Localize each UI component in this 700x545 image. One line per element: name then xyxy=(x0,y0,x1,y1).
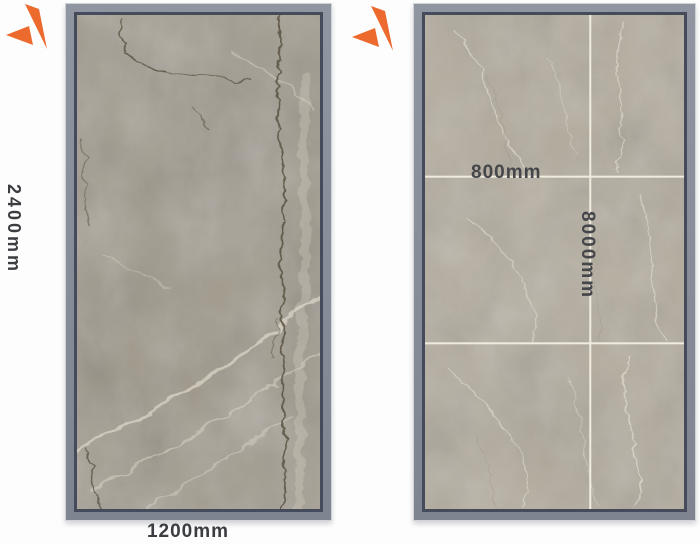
slab-panel xyxy=(65,3,332,521)
tile-product-image: 2400mm 1200mm xyxy=(0,0,700,545)
tile-panel: 800mm 8000mm xyxy=(413,3,696,521)
slab-panel-frame xyxy=(74,12,323,512)
tile-width-label: 800mm xyxy=(471,162,542,184)
slab-height-label: 2400mm xyxy=(3,184,24,274)
marble-tile-texture xyxy=(425,15,684,509)
slab-width-label: 1200mm xyxy=(118,521,258,543)
grout-line-horizontal-2 xyxy=(425,342,684,344)
spark-icon xyxy=(2,1,52,56)
tile-panel-frame: 800mm 8000mm xyxy=(422,12,687,512)
grout-line-horizontal-1 xyxy=(425,176,684,178)
spark-icon xyxy=(348,3,398,58)
tile-height-label: 8000mm xyxy=(576,211,598,299)
marble-slab-texture xyxy=(77,15,320,509)
